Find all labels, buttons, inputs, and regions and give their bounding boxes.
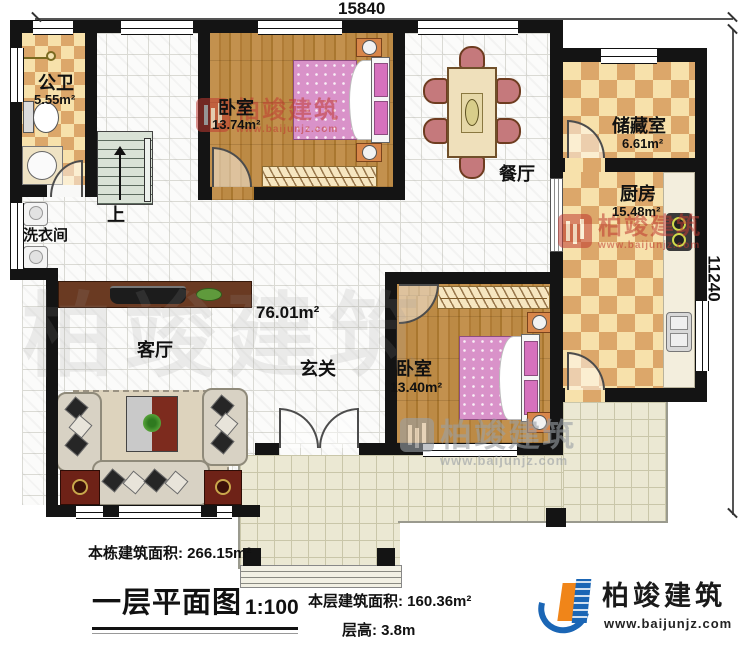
logo-url-text: www.baijunjz.com (604, 617, 732, 630)
wall-bedroom1-right (393, 33, 405, 200)
room-label-bedroom1: 卧室 (218, 99, 254, 117)
room-area-bedroom2: 13.40m² (390, 380, 442, 394)
dining-chair (496, 118, 521, 144)
room-label-kitchen: 厨房 (620, 185, 656, 203)
room-area-kitchen: 15.48m² (612, 205, 660, 218)
table-centerpiece (465, 99, 479, 126)
title-underline (92, 627, 298, 630)
sink-basin-top (670, 316, 688, 330)
room-label-storage: 储藏室 (612, 117, 666, 135)
watermark-url: www.baijunjz.com (440, 453, 576, 468)
terrace-edge-bottom (398, 521, 668, 523)
watermark-brand: 柏竣建筑 (440, 418, 576, 453)
floor-plan-canvas: 柏竣建筑 柏竣建筑 www.baijunjz.com 柏竣建筑 www.baij… (0, 0, 750, 646)
door-gap (212, 187, 254, 200)
dining-chair (459, 46, 485, 69)
dining-chair (459, 156, 485, 179)
dimension-tick (727, 12, 738, 23)
dimension-line-right (732, 30, 734, 515)
window (10, 203, 24, 269)
company-logo: 柏竣建筑 www.baijunjz.com (538, 575, 738, 641)
room-label-dining: 餐厅 (499, 165, 535, 183)
watermark-url: www.baijunjz.com (598, 240, 702, 251)
room-label-bedroom2: 卧室 (396, 360, 432, 378)
room-area-storage: 6.61m² (622, 137, 663, 150)
watermark-logo-icon (400, 418, 434, 452)
window (601, 48, 657, 64)
window (33, 20, 73, 35)
room-label-bathroom: 公卫 (38, 74, 74, 92)
dimension-width: 15840 (338, 0, 385, 17)
dining-chair (423, 118, 448, 144)
coffee-table-plant (143, 414, 161, 432)
side-table-compass (72, 479, 88, 495)
stairs-up-label: 上 (107, 206, 125, 224)
room-label-hall: 玄关 (300, 360, 336, 378)
dimension-line-top (35, 18, 733, 20)
bed-blanket-fold (349, 60, 373, 140)
dimension-height: 11240 (706, 255, 723, 301)
bed-pillow (374, 101, 388, 135)
room-label-laundry: 洗衣间 (23, 228, 68, 243)
porch-column (377, 548, 395, 566)
title-underline-thin (92, 633, 298, 634)
window (10, 48, 24, 102)
stair-handrail (144, 138, 151, 202)
stair-arrow-head (114, 146, 126, 155)
towel-hook (46, 51, 56, 61)
window (258, 20, 342, 35)
plan-scale: 1:100 (245, 597, 299, 618)
window-post (103, 505, 119, 517)
floor-area-text: 本层建筑面积: 160.36m² (308, 594, 471, 609)
floor-height-text: 层高: 3.8m (342, 623, 415, 638)
porch (240, 455, 400, 567)
watermark-logo-icon (558, 214, 592, 248)
open-area-label: 76.01m² (256, 304, 319, 321)
window (418, 20, 518, 35)
building-area-text: 本栋建筑面积: 266.15m² (88, 546, 251, 561)
watermark-stamp: 柏竣建筑 www.baijunjz.com (400, 418, 576, 468)
bed-pillow (374, 63, 388, 97)
window (121, 20, 193, 35)
porch-steps (240, 565, 402, 588)
sink-basin (27, 151, 57, 180)
window-post (201, 505, 217, 517)
watermark-large: 柏竣建筑 (22, 262, 562, 395)
dining-chair (423, 78, 448, 104)
stair-arrow (119, 152, 121, 200)
watermark-stamp: 柏竣建筑 www.baijunjz.com (558, 214, 702, 251)
side-table-compass (215, 479, 231, 495)
terrace-column (546, 508, 566, 527)
sink-basin-bottom (670, 333, 688, 347)
nightstand (356, 38, 382, 57)
washer-door (29, 206, 43, 220)
room-area-bedroom1: 13.74m² (212, 118, 260, 131)
nightstand (356, 143, 382, 162)
logo-brand-text: 柏竣建筑 (602, 583, 726, 610)
wall-bathroom-right (85, 33, 97, 197)
room-label-living: 客厅 (137, 341, 173, 359)
terrace-edge-right (666, 402, 668, 523)
plan-title: 一层平面图 (92, 589, 242, 618)
logo-building-blue (572, 579, 592, 623)
dining-chair (496, 78, 521, 104)
door-gap (565, 158, 605, 172)
terrace-right (563, 402, 668, 523)
window-kitchen (695, 301, 709, 371)
kitchen-counter (663, 172, 695, 388)
wardrobe (262, 166, 377, 187)
room-area-bathroom: 5.55m² (34, 93, 75, 106)
door-gap (565, 388, 605, 402)
